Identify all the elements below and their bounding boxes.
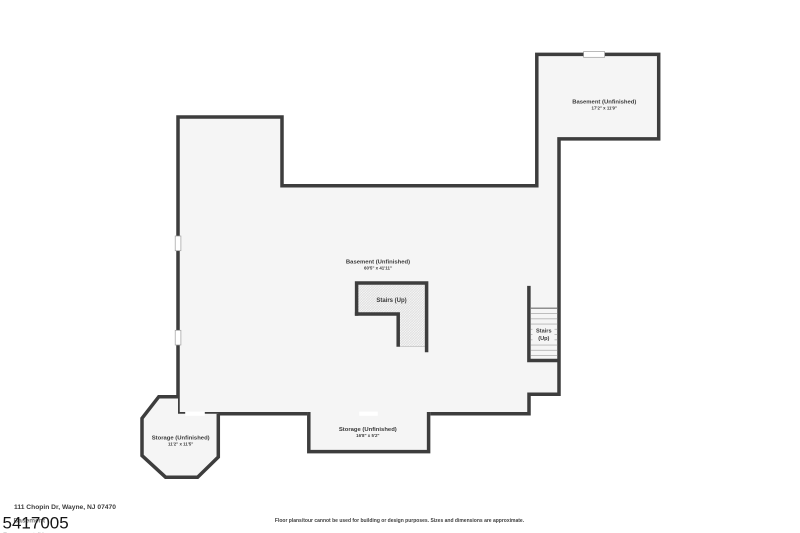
- svg-text:Stairs: Stairs: [536, 329, 552, 335]
- svg-text:5417005: 5417005: [3, 514, 69, 533]
- svg-text:60'5" x 41'11": 60'5" x 41'11": [364, 265, 392, 270]
- svg-text:17'2" x 11'9": 17'2" x 11'9": [592, 105, 618, 110]
- svg-text:11'2" x 11'5": 11'2" x 11'5": [168, 441, 193, 446]
- svg-text:Floor plans/tour cannot be use: Floor plans/tour cannot be used for buil…: [275, 518, 525, 524]
- svg-text:16'8" x 5'2": 16'8" x 5'2": [356, 433, 379, 438]
- svg-text:111 Chopin Dr, Wayne, NJ 07470: 111 Chopin Dr, Wayne, NJ 07470: [14, 504, 116, 511]
- svg-text:(Up): (Up): [538, 336, 549, 342]
- svg-text:Stairs (Up): Stairs (Up): [376, 298, 406, 304]
